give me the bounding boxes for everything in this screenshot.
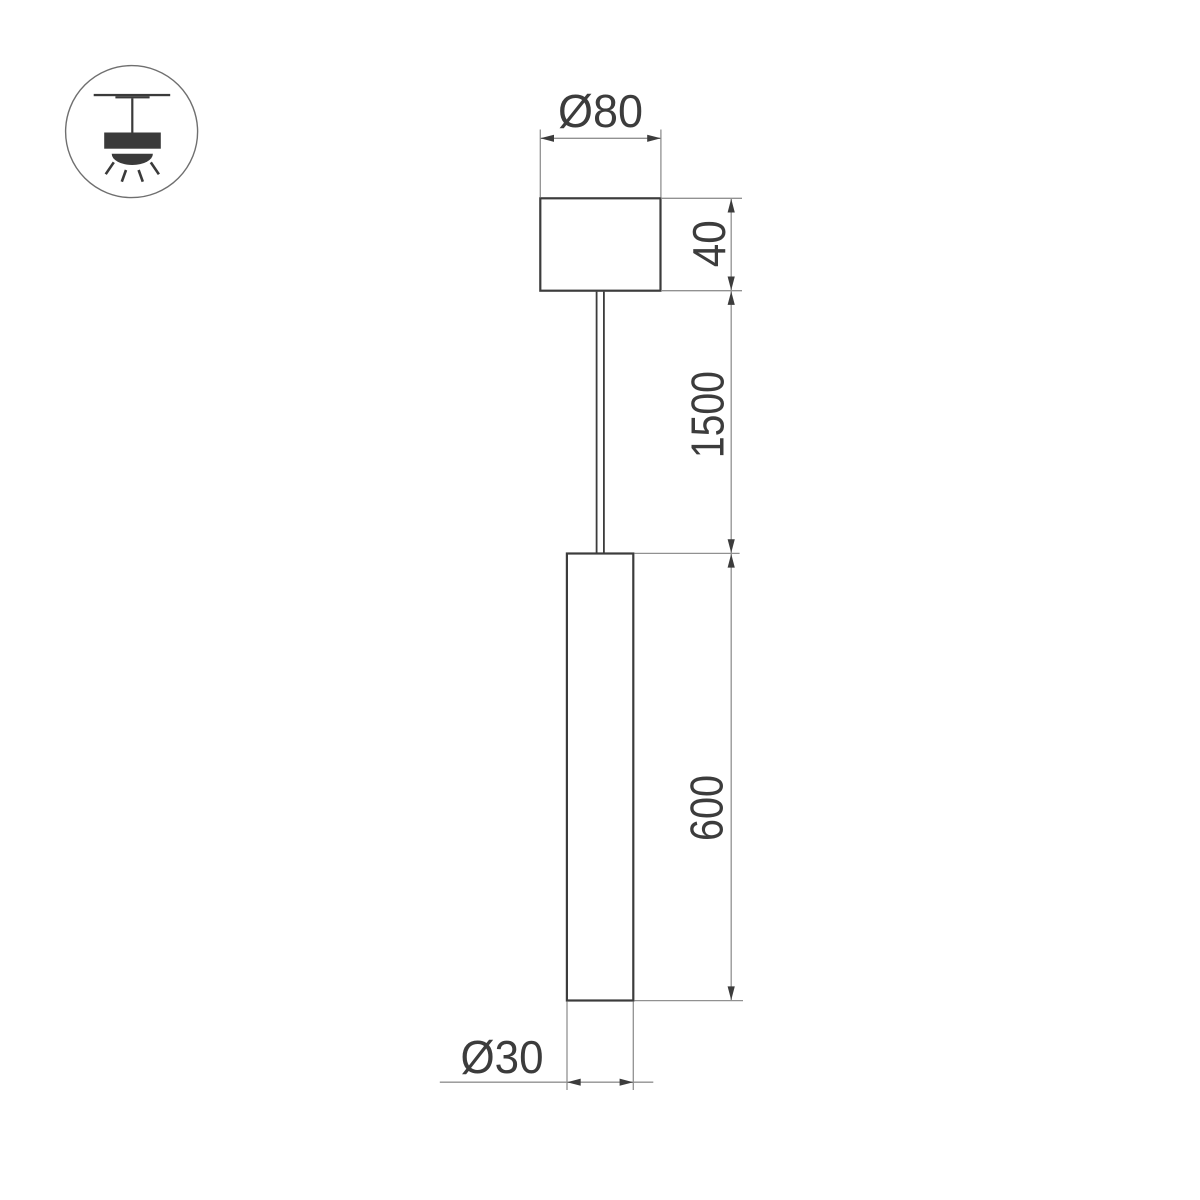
svg-text:600: 600 xyxy=(681,775,733,841)
svg-text:Ø30: Ø30 xyxy=(461,1031,544,1083)
svg-text:40: 40 xyxy=(683,220,735,267)
svg-text:Ø80: Ø80 xyxy=(558,85,643,137)
svg-text:1500: 1500 xyxy=(682,371,734,458)
